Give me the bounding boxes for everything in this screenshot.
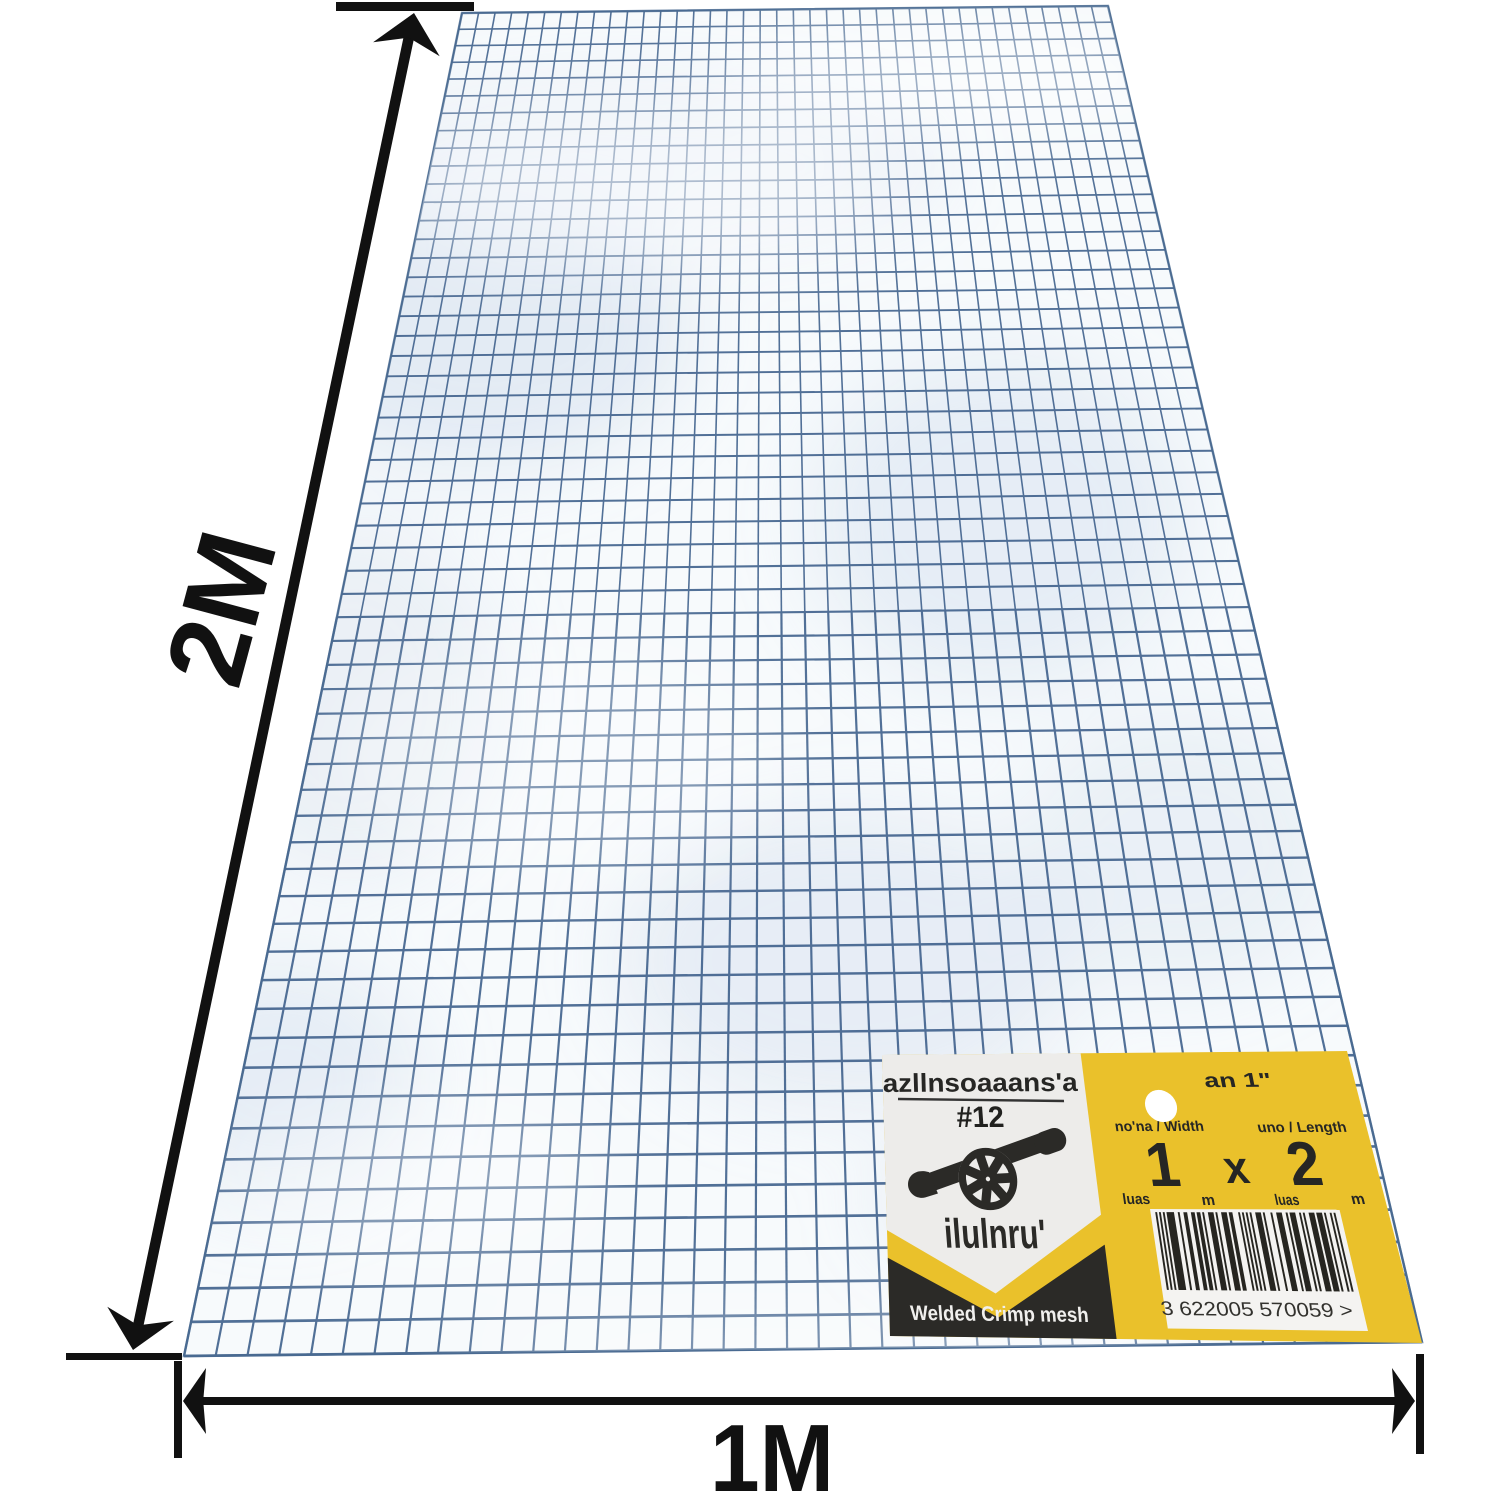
svg-text:#12: #12 (955, 1101, 1005, 1134)
svg-text:m: m (1200, 1193, 1216, 1209)
svg-text:luas: luas (1273, 1192, 1301, 1209)
svg-text:1M: 1M (710, 1405, 834, 1500)
svg-text:Welded Crimp mesh: Welded Crimp mesh (910, 1302, 1090, 1327)
svg-text:an 1": an 1" (1202, 1070, 1274, 1092)
svg-text:azllnsoaaans'a: azllnsoaaans'a (882, 1069, 1079, 1099)
svg-text:ilulnru': ilulnru' (942, 1211, 1047, 1258)
svg-text:luas: luas (1122, 1192, 1152, 1208)
svg-text:3 622005 570059 >: 3 622005 570059 > (1159, 1297, 1355, 1321)
